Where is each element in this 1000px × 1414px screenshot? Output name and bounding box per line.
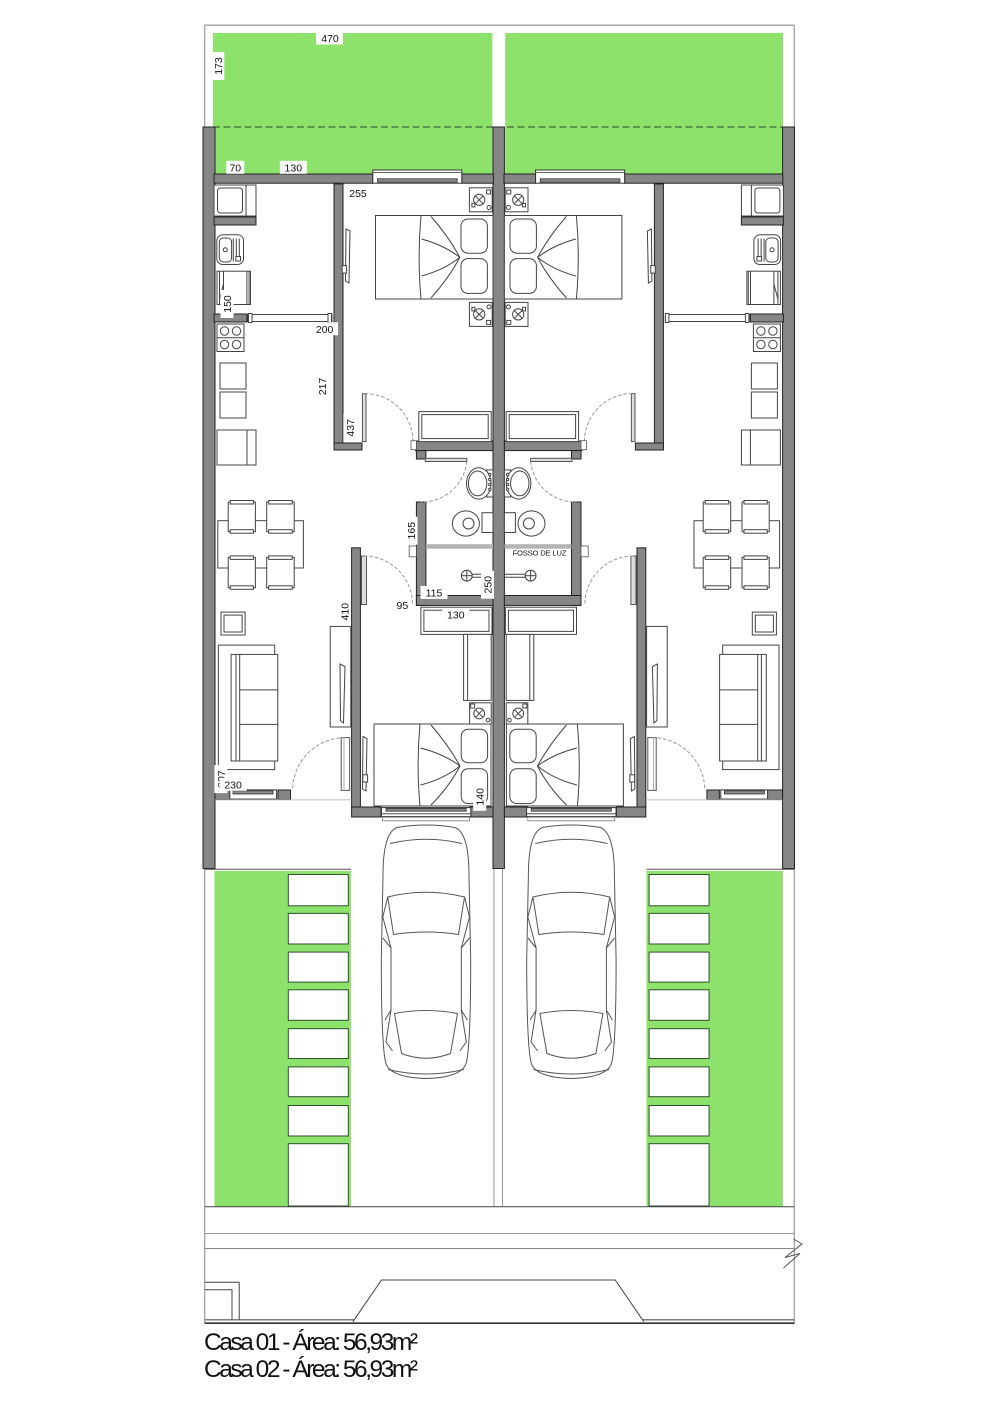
svg-text:150: 150 — [222, 295, 234, 313]
svg-text:FOSSO DE LUZ: FOSSO DE LUZ — [513, 549, 567, 558]
svg-text:130: 130 — [447, 610, 465, 622]
svg-text:410: 410 — [339, 603, 351, 621]
svg-text:217: 217 — [317, 377, 329, 395]
svg-text:140: 140 — [475, 788, 487, 806]
svg-text:437: 437 — [345, 419, 357, 437]
svg-text:70: 70 — [229, 162, 241, 174]
svg-text:230: 230 — [224, 779, 242, 791]
svg-text:200: 200 — [316, 324, 334, 336]
svg-text:250: 250 — [483, 576, 495, 594]
svg-text:95: 95 — [397, 600, 409, 612]
svg-text:130: 130 — [285, 162, 303, 174]
svg-text:Casa 02 - Área: 56,93m²: Casa 02 - Área: 56,93m² — [204, 1356, 418, 1383]
svg-text:165: 165 — [406, 522, 418, 540]
svg-text:255: 255 — [349, 188, 367, 200]
svg-text:115: 115 — [426, 587, 443, 599]
svg-text:Casa 01 - Área: 56,93m²: Casa 01 - Área: 56,93m² — [204, 1329, 418, 1356]
svg-text:173: 173 — [213, 57, 225, 75]
svg-text:470: 470 — [321, 33, 339, 45]
